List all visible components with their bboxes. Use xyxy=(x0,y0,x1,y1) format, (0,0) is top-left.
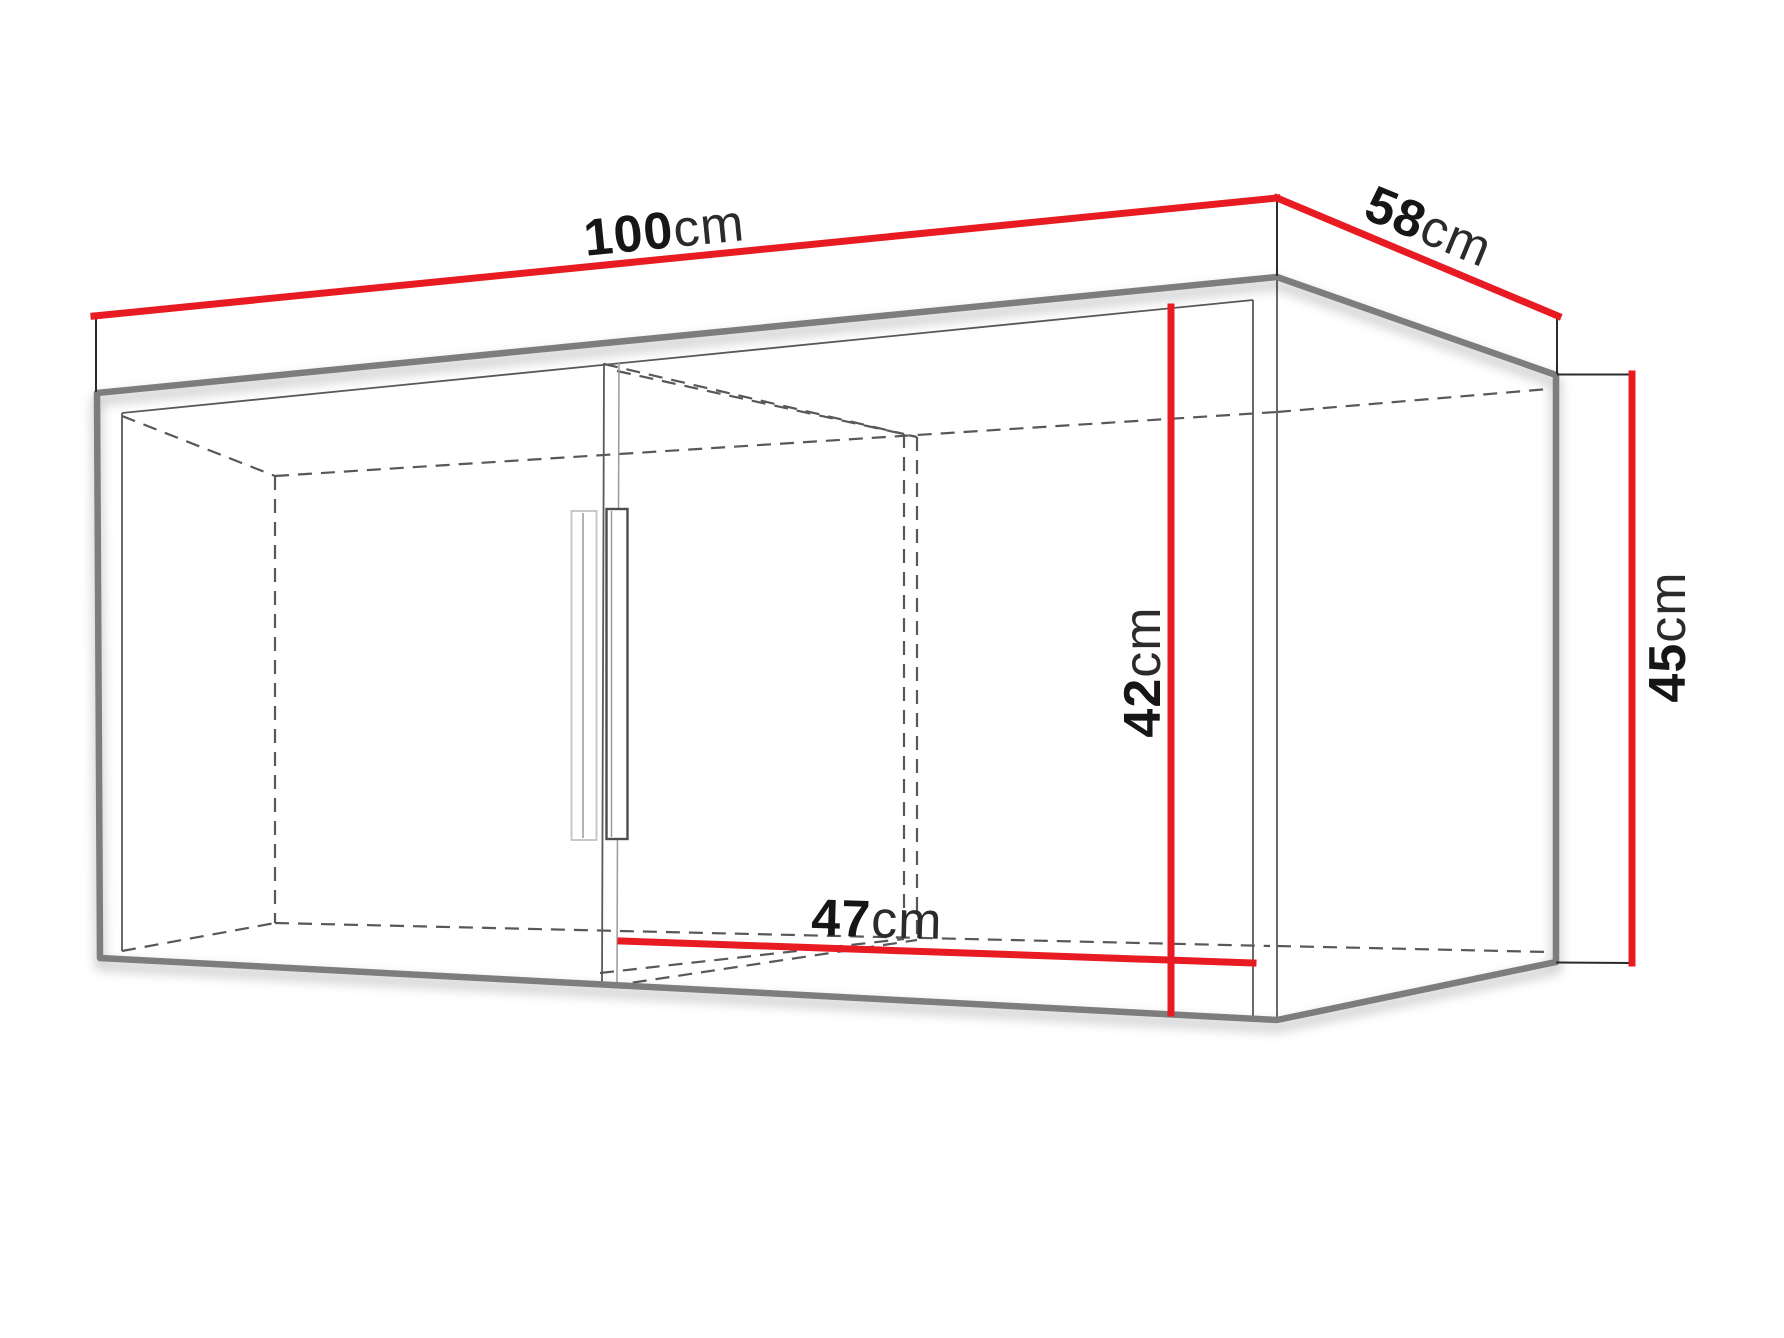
front-frame-top-edge xyxy=(122,300,1253,413)
dimension-connectors xyxy=(96,198,1631,963)
interior-left-top-depth-line xyxy=(122,416,275,476)
door-handles xyxy=(572,509,628,840)
diagram-canvas: 100cm 58cm 45cm 42cm 47cm xyxy=(0,0,1784,1338)
interior-back-bottom-edge xyxy=(275,923,1270,946)
interior-right-face-top-edge xyxy=(1277,389,1548,412)
carcass-front-frame xyxy=(122,277,1277,1019)
right-door-handle xyxy=(607,509,628,839)
connector-height-bottom xyxy=(1556,963,1631,964)
label-inner-width-47cm: 47cm xyxy=(811,889,944,951)
divider-top-edge-a xyxy=(604,364,904,434)
interior-right-face-bottom-edge xyxy=(1277,946,1548,952)
label-inner-height-42cm: 42cm xyxy=(1114,606,1172,737)
left-door-handle xyxy=(572,511,597,840)
interior-left-bottom-depth-line xyxy=(122,923,275,951)
interior-back-top-edge xyxy=(275,412,1277,476)
label-height-45cm: 45cm xyxy=(1639,571,1697,702)
divider-top-edge-b xyxy=(617,371,917,437)
cabinet-dimension-diagram: 100cm 58cm 45cm 42cm 47cm xyxy=(0,0,1784,1338)
